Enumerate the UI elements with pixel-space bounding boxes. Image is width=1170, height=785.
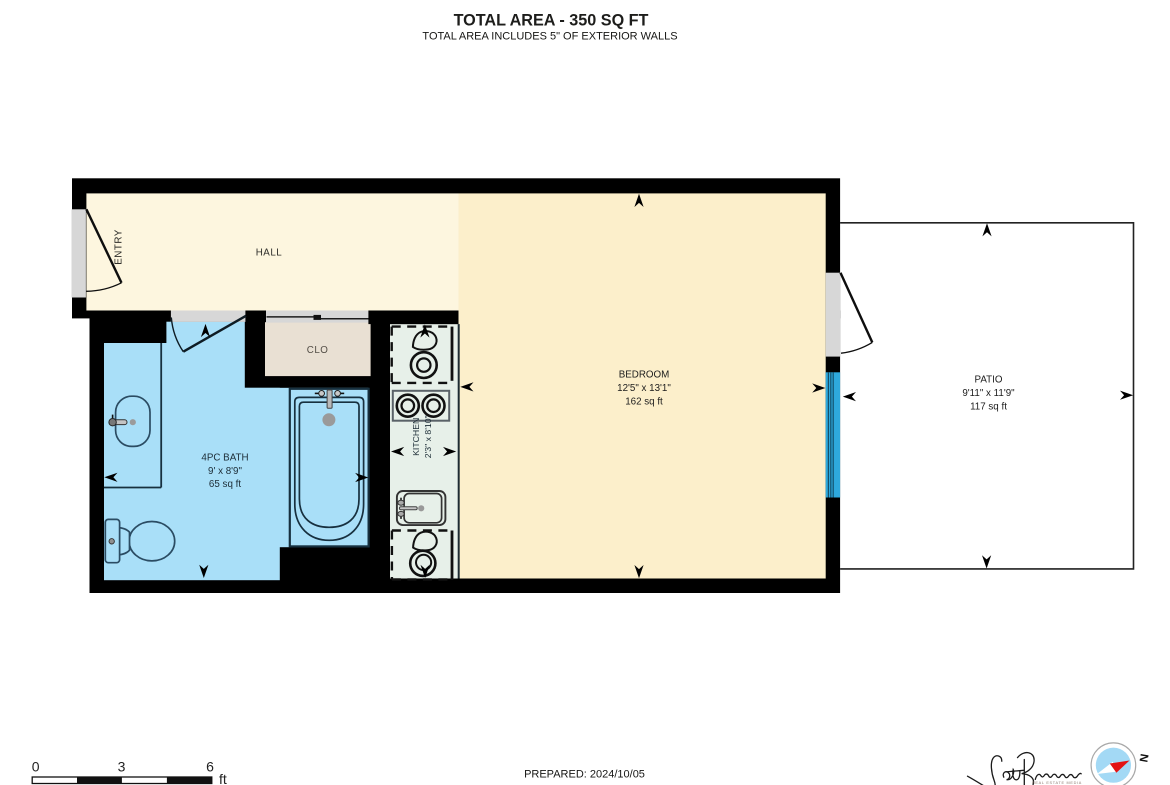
svg-text:KITCHEN: KITCHEN	[411, 418, 421, 456]
svg-text:REAL ESTATE MEDIA: REAL ESTATE MEDIA	[1032, 781, 1082, 785]
svg-text:PREPARED: 2024/10/05: PREPARED: 2024/10/05	[524, 769, 645, 781]
svg-text:HALL: HALL	[256, 248, 283, 259]
svg-text:ENTRY: ENTRY	[114, 229, 125, 265]
svg-text:ft: ft	[219, 771, 227, 785]
svg-text:PATIO: PATIO	[975, 375, 1003, 386]
svg-text:CLO: CLO	[307, 345, 329, 356]
svg-text:3: 3	[118, 759, 126, 775]
svg-text:117 sq ft: 117 sq ft	[970, 402, 1007, 413]
svg-text:12'5" x 13'1": 12'5" x 13'1"	[617, 383, 671, 394]
svg-text:65 sq ft: 65 sq ft	[209, 479, 241, 490]
svg-text:TOTAL AREA - 350 SQ FT: TOTAL AREA - 350 SQ FT	[454, 12, 649, 30]
svg-text:TOTAL AREA INCLUDES 5" OF EXTE: TOTAL AREA INCLUDES 5" OF EXTERIOR WALLS	[422, 31, 677, 43]
svg-text:9'11" x 11'9": 9'11" x 11'9"	[962, 388, 1015, 399]
svg-text:6: 6	[206, 759, 214, 775]
svg-text:BEDROOM: BEDROOM	[619, 370, 670, 381]
svg-text:9' x 8'9": 9' x 8'9"	[208, 466, 242, 477]
svg-text:2'3" x 8'10": 2'3" x 8'10"	[423, 415, 433, 458]
svg-text:162 sq ft: 162 sq ft	[625, 397, 663, 408]
svg-text:0: 0	[32, 759, 40, 775]
svg-text:4PC BATH: 4PC BATH	[201, 453, 248, 464]
